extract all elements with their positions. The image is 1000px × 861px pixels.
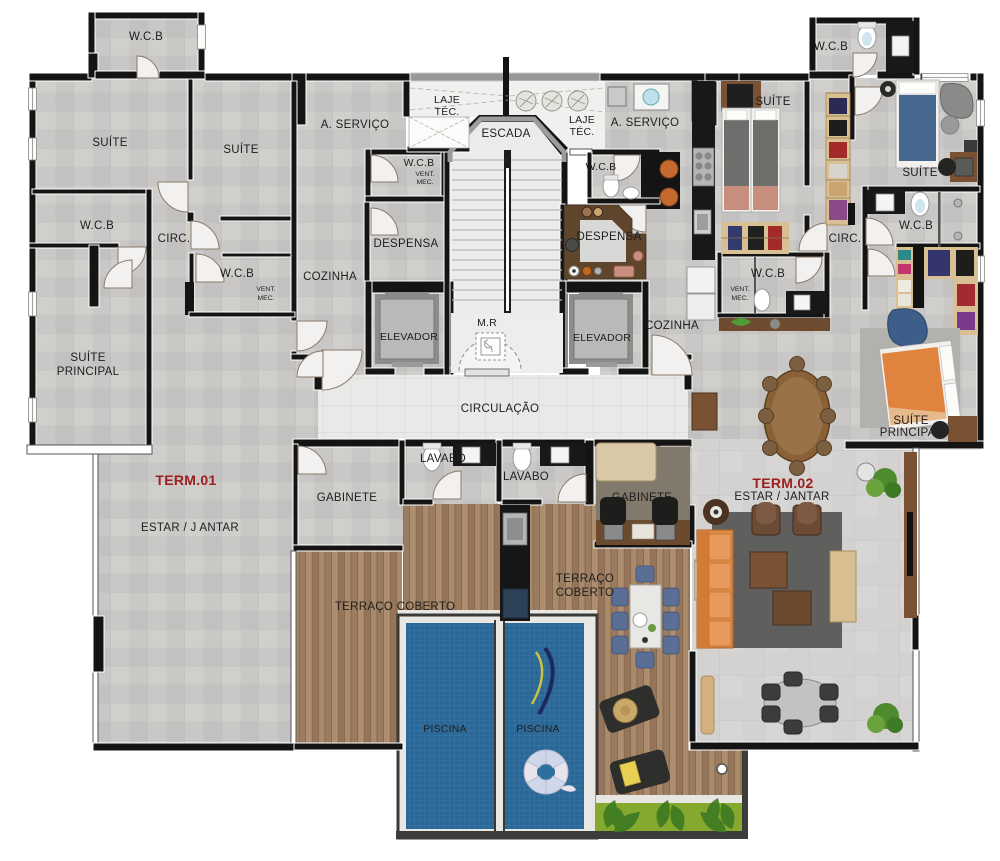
svg-text:LAVABO: LAVABO <box>503 471 549 483</box>
svg-text:W.C.B: W.C.B <box>404 157 435 169</box>
svg-text:DESPENSA: DESPENSA <box>576 231 641 243</box>
svg-text:ESCADA: ESCADA <box>481 128 530 140</box>
svg-text:VENT.: VENT. <box>256 286 275 293</box>
svg-text:SUÍTE: SUÍTE <box>902 166 937 179</box>
svg-text:CIRC.: CIRC. <box>158 233 191 245</box>
svg-text:W.C.B: W.C.B <box>80 220 114 232</box>
svg-text:ELEVADOR: ELEVADOR <box>380 331 438 343</box>
svg-text:LAJE: LAJE <box>434 94 460 106</box>
svg-text:GABINETE: GABINETE <box>612 492 673 504</box>
svg-text:W.C.B: W.C.B <box>129 31 163 43</box>
svg-text:CIRC.: CIRC. <box>829 233 862 245</box>
svg-text:COZINHA: COZINHA <box>645 320 699 332</box>
svg-text:W.C.B: W.C.B <box>814 41 848 53</box>
svg-text:CIRCULAÇÃO: CIRCULAÇÃO <box>461 402 539 415</box>
svg-text:DESPENSA: DESPENSA <box>373 238 438 250</box>
svg-text:MEC.: MEC. <box>732 295 749 302</box>
svg-text:A. SERVIÇO: A. SERVIÇO <box>321 119 390 131</box>
svg-text:PRINCIPAL: PRINCIPAL <box>880 427 943 439</box>
svg-text:VENT.: VENT. <box>415 171 434 178</box>
svg-text:SUÍTE: SUÍTE <box>70 351 105 364</box>
svg-text:PRINCIPAL: PRINCIPAL <box>57 366 120 378</box>
svg-text:TERM.02: TERM.02 <box>752 475 813 491</box>
svg-text:SUÍTE: SUÍTE <box>893 414 928 427</box>
svg-text:TÉC.: TÉC. <box>570 125 595 138</box>
svg-text:W.C.B: W.C.B <box>751 268 785 280</box>
svg-text:PISCINA: PISCINA <box>423 723 466 735</box>
svg-text:W.C.B: W.C.B <box>586 161 617 173</box>
svg-text:W.C.B: W.C.B <box>899 220 933 232</box>
svg-text:TERM.01: TERM.01 <box>155 472 216 488</box>
svg-text:TERRAÇO COBERTO: TERRAÇO COBERTO <box>335 601 455 613</box>
svg-text:W.C.B: W.C.B <box>220 268 254 280</box>
svg-text:MEC.: MEC. <box>417 179 434 186</box>
svg-text:ESTAR / J ANTAR: ESTAR / J ANTAR <box>141 522 239 534</box>
svg-text:COBERTO: COBERTO <box>556 587 615 599</box>
svg-text:TERRAÇO: TERRAÇO <box>556 573 614 585</box>
svg-text:ESTAR / JANTAR: ESTAR / JANTAR <box>734 491 829 503</box>
svg-text:LAJE: LAJE <box>569 114 595 126</box>
svg-text:M.R: M.R <box>477 317 497 329</box>
svg-text:LAVABO: LAVABO <box>420 453 466 465</box>
svg-text:SUÍTE: SUÍTE <box>223 143 258 156</box>
svg-text:PISCINA: PISCINA <box>516 723 559 735</box>
svg-text:GABINETE: GABINETE <box>317 492 378 504</box>
svg-text:TÉC.: TÉC. <box>435 105 460 118</box>
svg-text:SUÍTE: SUÍTE <box>755 95 790 108</box>
svg-text:SUÍTE: SUÍTE <box>92 136 127 149</box>
svg-text:MEC.: MEC. <box>258 295 275 302</box>
svg-text:A. SERVIÇO: A. SERVIÇO <box>611 117 680 129</box>
svg-text:VENT.: VENT. <box>730 286 749 293</box>
svg-text:ELEVADOR: ELEVADOR <box>573 332 631 344</box>
svg-text:COZINHA: COZINHA <box>303 271 357 283</box>
